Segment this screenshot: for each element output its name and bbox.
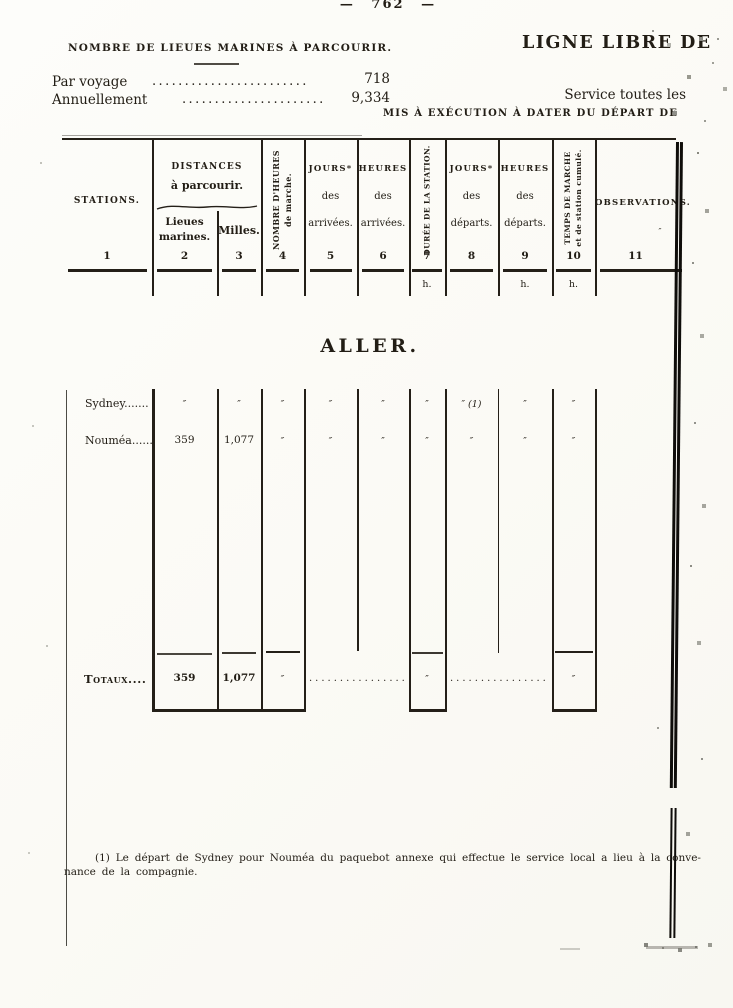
col-jours-arrivees-1: JOURS* bbox=[304, 164, 357, 174]
totals-lieues: 359 bbox=[152, 672, 217, 684]
col-milles-label: Milles. bbox=[217, 224, 261, 237]
col-duree-station-label: DURÉE DE LA STATION. bbox=[423, 136, 432, 266]
number-underline bbox=[362, 269, 404, 272]
cell-noumea-temps: ″ bbox=[552, 436, 595, 447]
cell-sydney-heures: ″ bbox=[261, 399, 304, 410]
heading-rule bbox=[194, 63, 239, 65]
execution-note: MIS À EXÉCUTION À DATER DU DÉPART DE bbox=[383, 108, 678, 119]
cell-sydney-heures-arr: ″ bbox=[357, 399, 409, 410]
col-number-8: 8 bbox=[445, 250, 498, 262]
col-heures-marche-label: NOMBRE D'HEURES de marche. bbox=[270, 140, 294, 260]
col-number-4: 4 bbox=[261, 250, 304, 262]
header-divider bbox=[595, 140, 597, 296]
col-observations-label: OBSERVATIONS. bbox=[595, 198, 676, 208]
section-title-aller: ALLER. bbox=[300, 335, 440, 357]
col-heures-arrivees-3: arrivées. bbox=[357, 218, 409, 229]
stat-leader-par-voyage: ........................ bbox=[152, 74, 334, 89]
line-title: LIGNE LIBRE DE bbox=[522, 33, 712, 53]
col-heures-arrivees-1: HEURES bbox=[357, 164, 409, 174]
col-number-10: 10 bbox=[552, 250, 595, 262]
cell-sydney-heures-dep: ″ bbox=[498, 399, 552, 410]
stat-value-annuellement: 9,334 bbox=[335, 90, 390, 106]
unit-h-col7: h. bbox=[409, 279, 445, 290]
stat-leader-annuellement: ...................... bbox=[182, 92, 334, 107]
col-number-3: 3 bbox=[217, 250, 261, 262]
col-temps-marche-label: TEMPS DE MARCHE et de station cumulé. bbox=[562, 133, 584, 263]
number-underline bbox=[310, 269, 352, 272]
cell-sydney-lieues: ″ bbox=[152, 399, 217, 410]
bottom-smudge bbox=[646, 946, 698, 949]
col-heures-departs-3: départs. bbox=[498, 218, 552, 229]
col-jours-departs-2: des bbox=[445, 191, 498, 202]
number-underline bbox=[503, 269, 547, 272]
col-heures-departs-1: HEURES bbox=[498, 164, 552, 174]
sum-rule bbox=[266, 651, 300, 653]
page-fold-line bbox=[66, 390, 67, 946]
cell-noumea-milles: 1,077 bbox=[217, 434, 261, 446]
number-underline bbox=[157, 269, 212, 272]
sum-rule bbox=[222, 652, 256, 654]
cell-noumea-heures-arr: ″ bbox=[357, 436, 409, 447]
body-line bbox=[357, 389, 359, 651]
bottom-smudge bbox=[560, 948, 580, 950]
left-heading: NOMBRE DE LIEUES MARINES À PARCOURIR. bbox=[68, 42, 392, 54]
page-number: — 762 — bbox=[328, 0, 448, 21]
col-number-6: 6 bbox=[357, 250, 409, 262]
totals-milles: 1,077 bbox=[217, 672, 261, 684]
totals-label: Totaux.... bbox=[84, 672, 146, 686]
service-note: Service toutes les bbox=[520, 87, 686, 103]
binding-line bbox=[669, 808, 673, 938]
col-lieues-label-1: Lieues bbox=[152, 216, 217, 228]
unit-h-col9: h. bbox=[498, 279, 552, 290]
sum-rule bbox=[555, 651, 593, 653]
cell-noumea-heures-dep: ″ bbox=[498, 436, 552, 447]
distances-brace bbox=[155, 202, 259, 212]
distances-group-title: DISTANCES bbox=[152, 162, 262, 172]
col-number-11: 11 bbox=[595, 250, 676, 262]
col-jours-arrivees-3: arrivées. bbox=[304, 218, 357, 229]
col-heures-arrivees-2: des bbox=[357, 191, 409, 202]
cell-noumea-jours-arr: ″ bbox=[304, 436, 357, 447]
col-jours-departs-1: JOURS* bbox=[445, 164, 498, 174]
number-underline bbox=[222, 269, 256, 272]
binding-edge bbox=[668, 142, 686, 942]
totals-leader-a: .................. bbox=[309, 673, 406, 684]
col-number-5: 5 bbox=[304, 250, 357, 262]
totals-temps-mark: ″ bbox=[552, 674, 595, 685]
number-underline bbox=[266, 269, 299, 272]
cell-sydney-temps: ″ bbox=[552, 399, 595, 410]
table-top-rule-faint bbox=[62, 135, 362, 136]
sum-rule bbox=[157, 653, 212, 655]
cell-noumea-heures: ″ bbox=[261, 436, 304, 447]
number-underline bbox=[600, 269, 682, 272]
col-number-2: 2 bbox=[152, 250, 217, 262]
binding-line bbox=[673, 808, 677, 938]
body-line bbox=[498, 389, 499, 653]
box-bottom bbox=[409, 709, 447, 712]
number-underline bbox=[68, 269, 147, 272]
scan-speckles bbox=[0, 0, 2, 2]
col-number-1: 1 bbox=[62, 250, 152, 262]
box-bottom bbox=[152, 709, 306, 712]
cell-noumea-jours-dep: ″ bbox=[445, 436, 498, 447]
scanned-document-page: — 762 — NOMBRE DE LIEUES MARINES À PARCO… bbox=[0, 0, 733, 1008]
col-observations-mark: ″ bbox=[650, 227, 670, 236]
cell-sydney-milles: ″ bbox=[217, 399, 261, 410]
body-line bbox=[595, 389, 597, 711]
number-underline bbox=[450, 269, 493, 272]
totals-heures-mark: ″ bbox=[261, 674, 304, 685]
cell-noumea-lieues: 359 bbox=[152, 434, 217, 446]
number-underline bbox=[556, 269, 591, 272]
col-number-7: 7 bbox=[409, 250, 445, 262]
header-divider bbox=[409, 140, 411, 296]
col-jours-arrivees-2: des bbox=[304, 191, 357, 202]
stat-label-annuellement: Annuellement bbox=[52, 92, 147, 108]
number-underline bbox=[412, 269, 442, 272]
row-label-noumea: Nouméa...... bbox=[85, 434, 153, 447]
totals-duree-mark: ″ bbox=[409, 674, 445, 685]
col-heures-departs-2: des bbox=[498, 191, 552, 202]
col-jours-departs-3: départs. bbox=[445, 218, 498, 229]
stat-label-par-voyage: Par voyage bbox=[52, 74, 127, 90]
cell-sydney-jours-arr: ″ bbox=[304, 399, 357, 410]
col-number-9: 9 bbox=[498, 250, 552, 262]
unit-h-col10: h. bbox=[552, 279, 595, 290]
footnote-line-2: nance de la compagnie. bbox=[64, 866, 197, 878]
footnote-line-1: (1) Le départ de Sydney pour Nouméa du p… bbox=[95, 852, 701, 864]
row-label-sydney: Sydney....... bbox=[85, 397, 149, 410]
header-divider bbox=[552, 140, 554, 296]
sum-rule bbox=[412, 652, 443, 654]
col-stations-label: STATIONS. bbox=[62, 196, 152, 206]
totals-leader-b: .................. bbox=[450, 673, 549, 684]
box-bottom bbox=[552, 709, 597, 712]
cell-sydney-duree: ″ bbox=[409, 399, 445, 410]
distances-group-subtitle: à parcourir. bbox=[152, 179, 262, 192]
stat-value-par-voyage: 718 bbox=[335, 71, 390, 87]
col-lieues-label-2: marines. bbox=[152, 231, 217, 243]
cell-noumea-duree: ″ bbox=[409, 436, 445, 447]
cell-sydney-jours-dep: ″ (1) bbox=[445, 399, 498, 410]
